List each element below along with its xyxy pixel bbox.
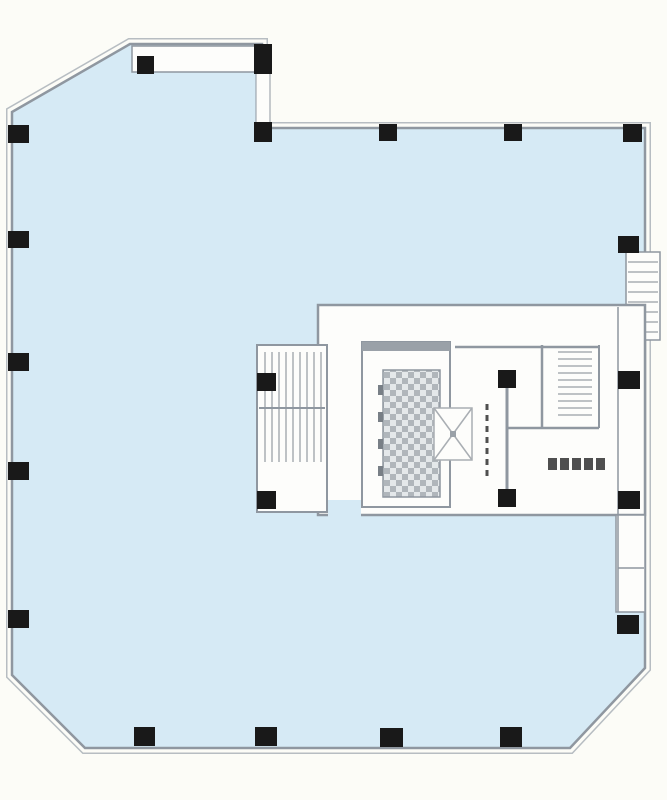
column-left-4 — [8, 462, 29, 480]
elevator-door-jambs — [378, 385, 383, 395]
step-wall — [256, 70, 270, 128]
column-bottom-2 — [255, 727, 277, 746]
illegible-label-marks — [584, 458, 593, 470]
column-left-3 — [8, 353, 29, 371]
column-top-1 — [379, 124, 397, 141]
column-left-1 — [8, 125, 29, 143]
stair-west — [257, 345, 327, 512]
column-core-mid-1 — [498, 370, 516, 388]
column-step-top — [254, 44, 272, 74]
column-core-west-1 — [257, 373, 276, 391]
elevator-shaft-hatched — [383, 370, 440, 497]
column-top-2 — [504, 124, 522, 141]
column-step-corner — [254, 122, 272, 142]
column-bottom-1 — [134, 727, 155, 746]
floor-plan-canvas — [0, 0, 667, 800]
column-left-5 — [8, 610, 29, 628]
column-right-1 — [618, 236, 639, 253]
floor-plan-page — [0, 0, 667, 800]
illegible-label-marks — [596, 458, 605, 470]
column-bottom-4 — [500, 727, 522, 747]
service-band — [616, 515, 645, 612]
column-core-mid-2 — [498, 489, 516, 507]
elevator-door-jambs — [378, 466, 383, 476]
elevator-door-jambs — [378, 439, 383, 449]
column-right-4 — [617, 615, 639, 634]
core-entrance-notch — [328, 500, 361, 517]
column-left-2 — [8, 231, 29, 248]
illegible-label-marks — [560, 458, 569, 470]
column-right-3 — [618, 491, 640, 509]
column-rooftop-room — [137, 56, 154, 74]
elevator-bank-top-wall — [362, 342, 450, 351]
machine-shaft-center — [450, 431, 456, 437]
illegible-label-marks — [572, 458, 581, 470]
column-right-2 — [618, 371, 640, 389]
column-bottom-3 — [380, 728, 403, 747]
illegible-label-marks — [548, 458, 557, 470]
column-top-right-corner — [623, 124, 642, 142]
column-core-west-2 — [257, 491, 276, 509]
elevator-door-jambs — [378, 412, 383, 422]
